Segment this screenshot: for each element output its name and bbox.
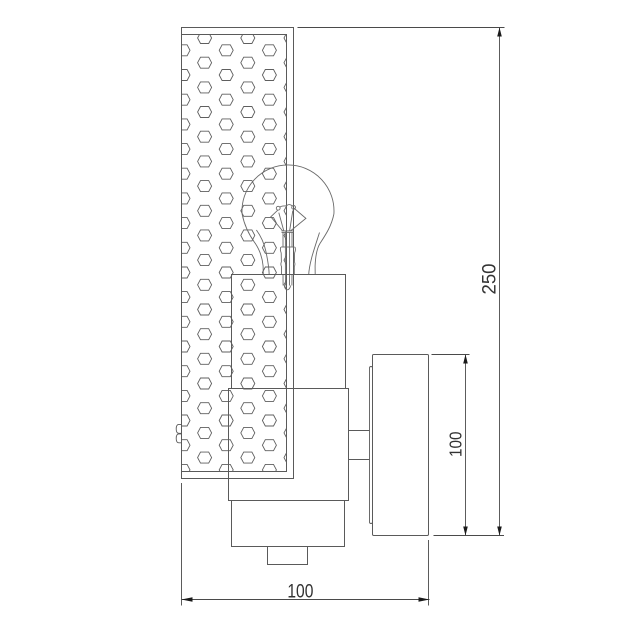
svg-text:100: 100 [287, 580, 313, 602]
svg-text:100: 100 [445, 431, 465, 457]
svg-text:250: 250 [480, 263, 501, 294]
